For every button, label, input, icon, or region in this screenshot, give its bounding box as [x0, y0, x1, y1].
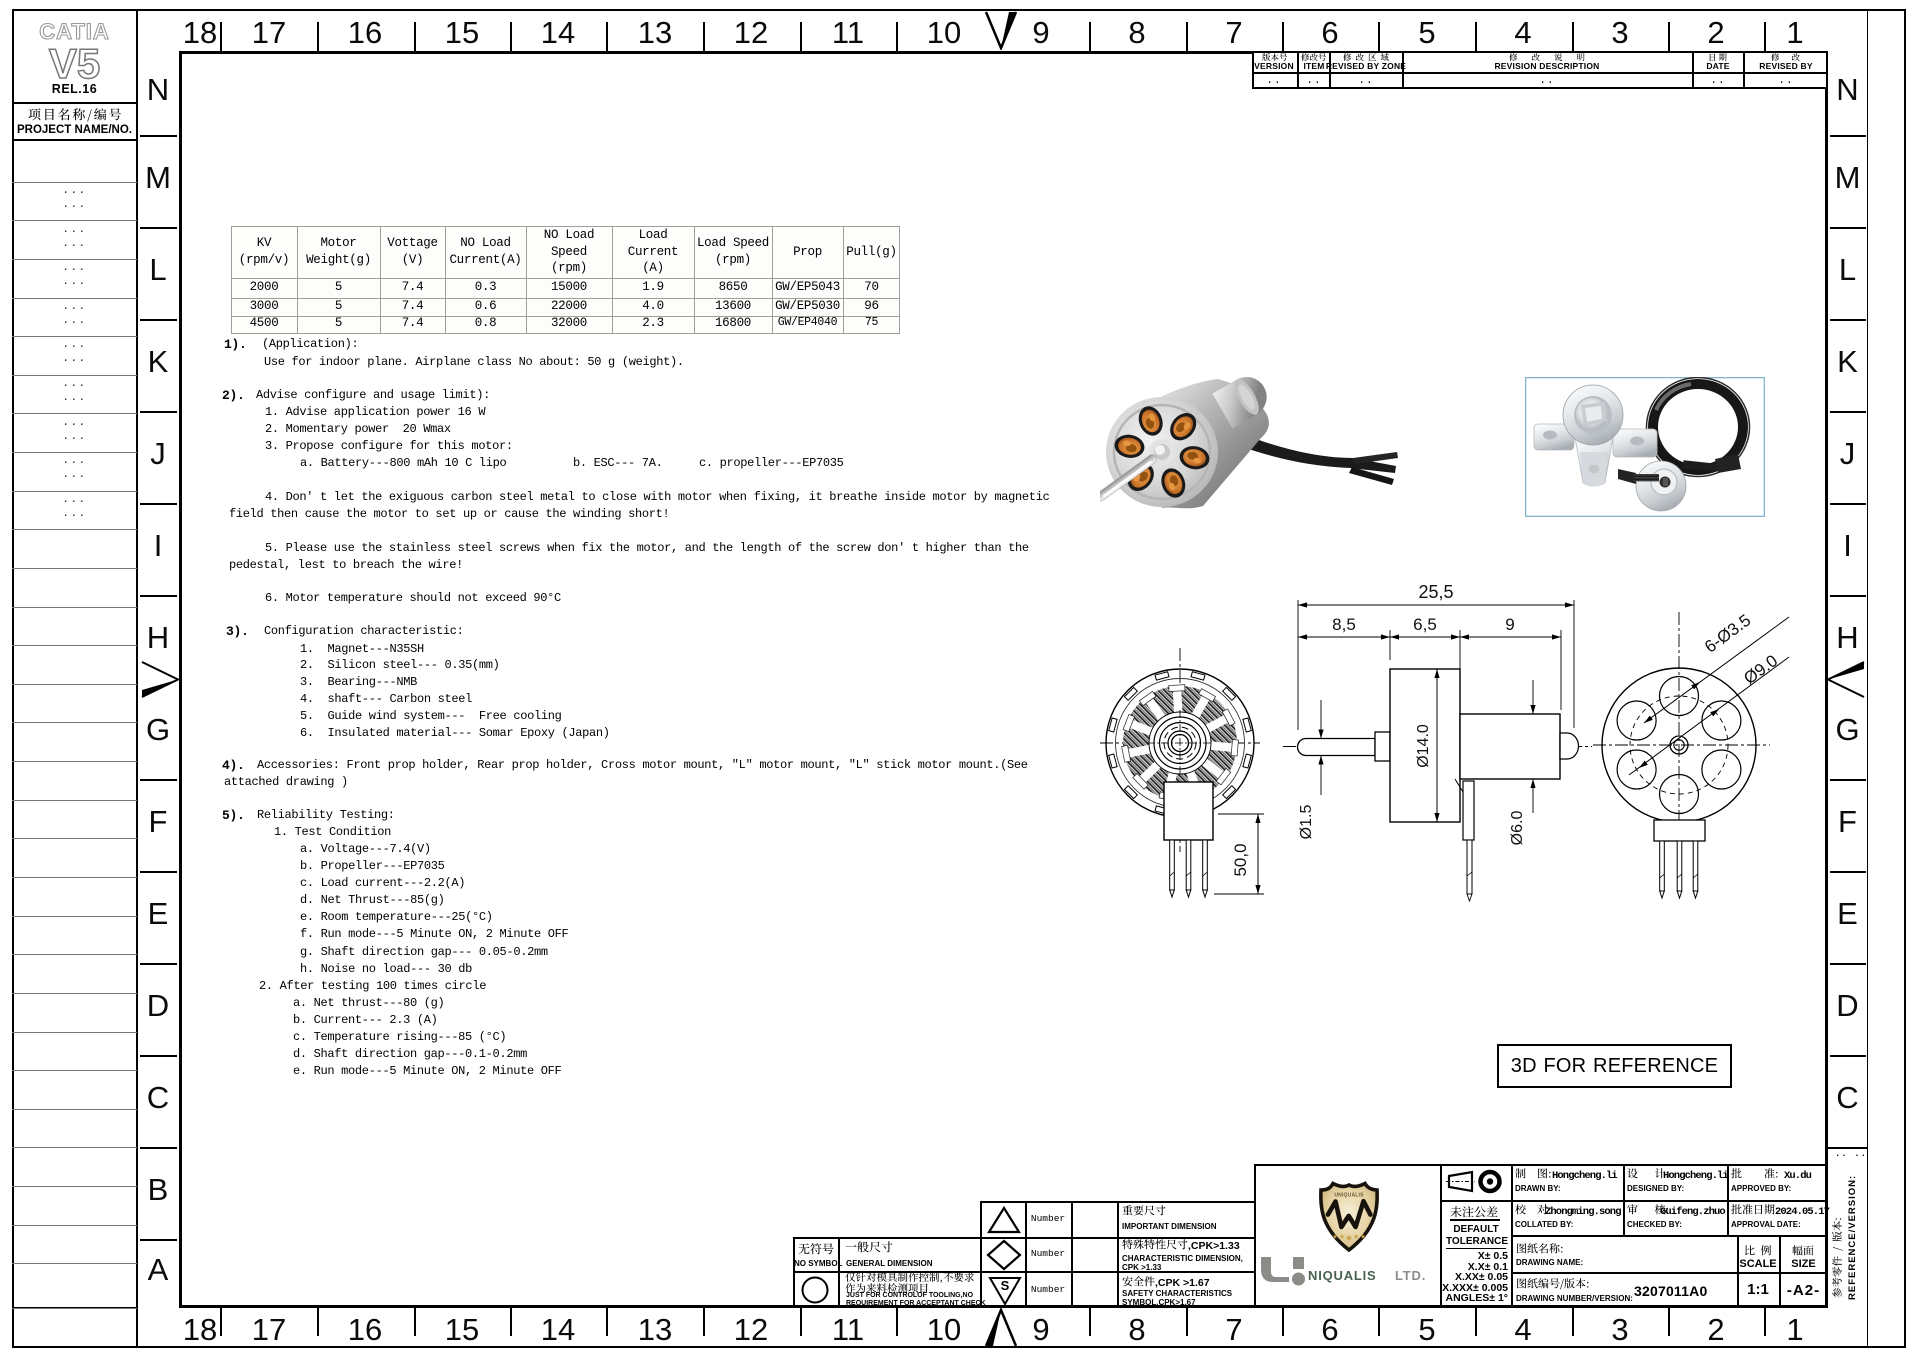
svg-text:UNIQUALIS: UNIQUALIS — [1334, 1193, 1364, 1199]
svg-text:25,5: 25,5 — [1418, 582, 1453, 602]
svg-text:Ø14.0: Ø14.0 — [1415, 724, 1432, 768]
svg-text:8,5: 8,5 — [1332, 615, 1356, 634]
svg-text:S: S — [1001, 1278, 1010, 1293]
svg-text:Ø6.0: Ø6.0 — [1509, 811, 1526, 846]
svg-text:Ø9.0: Ø9.0 — [1740, 651, 1781, 688]
svg-text:Ø1.5: Ø1.5 — [1298, 805, 1315, 840]
svg-text:NIQUALIS: NIQUALIS — [1308, 1268, 1377, 1283]
svg-text:6-Ø3.5: 6-Ø3.5 — [1701, 611, 1754, 657]
svg-text:50,0: 50,0 — [1231, 843, 1250, 876]
svg-text:9: 9 — [1505, 615, 1514, 634]
svg-text:6,5: 6,5 — [1413, 615, 1437, 634]
